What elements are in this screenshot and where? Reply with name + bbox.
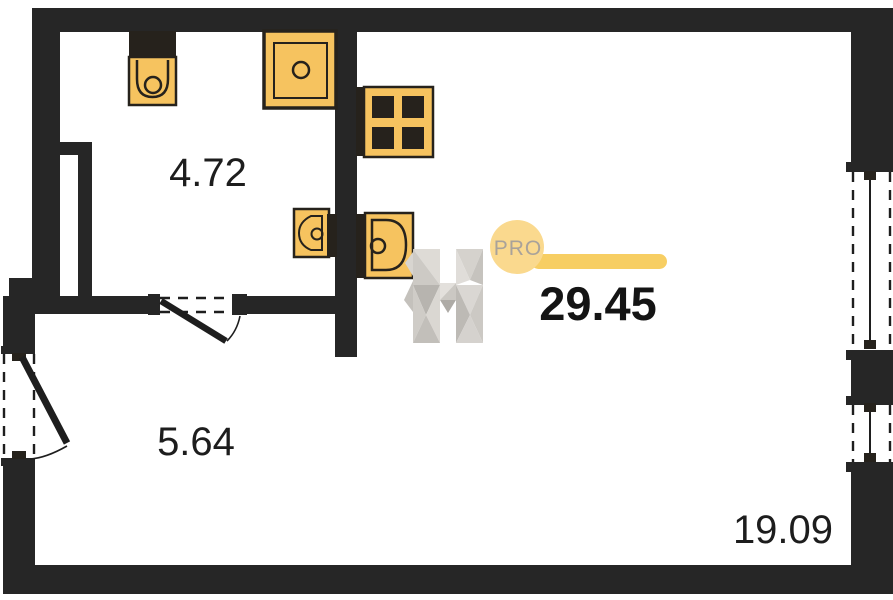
bathroom-sink-icon xyxy=(294,209,337,257)
total-area-label: 29.45 xyxy=(539,277,657,330)
window-icon xyxy=(853,171,890,349)
interior-door-icon xyxy=(160,298,240,341)
stove-icon xyxy=(356,87,433,157)
hallway-area-label: 5.64 xyxy=(157,420,235,464)
pro-badge-label: PRO xyxy=(494,237,543,260)
entrance-door-icon xyxy=(4,353,67,459)
toilet-icon xyxy=(129,31,176,105)
logo-watermark xyxy=(404,249,483,343)
floor-plan: PRO 4.72 5.64 19.09 29.45 xyxy=(0,0,893,600)
bathroom-area-label: 4.72 xyxy=(169,151,247,195)
accent-bar xyxy=(531,254,667,269)
living-area-label: 19.09 xyxy=(733,508,833,552)
window-icon xyxy=(853,403,890,462)
shower-icon xyxy=(264,31,336,108)
kitchen-sink-icon xyxy=(356,213,413,278)
